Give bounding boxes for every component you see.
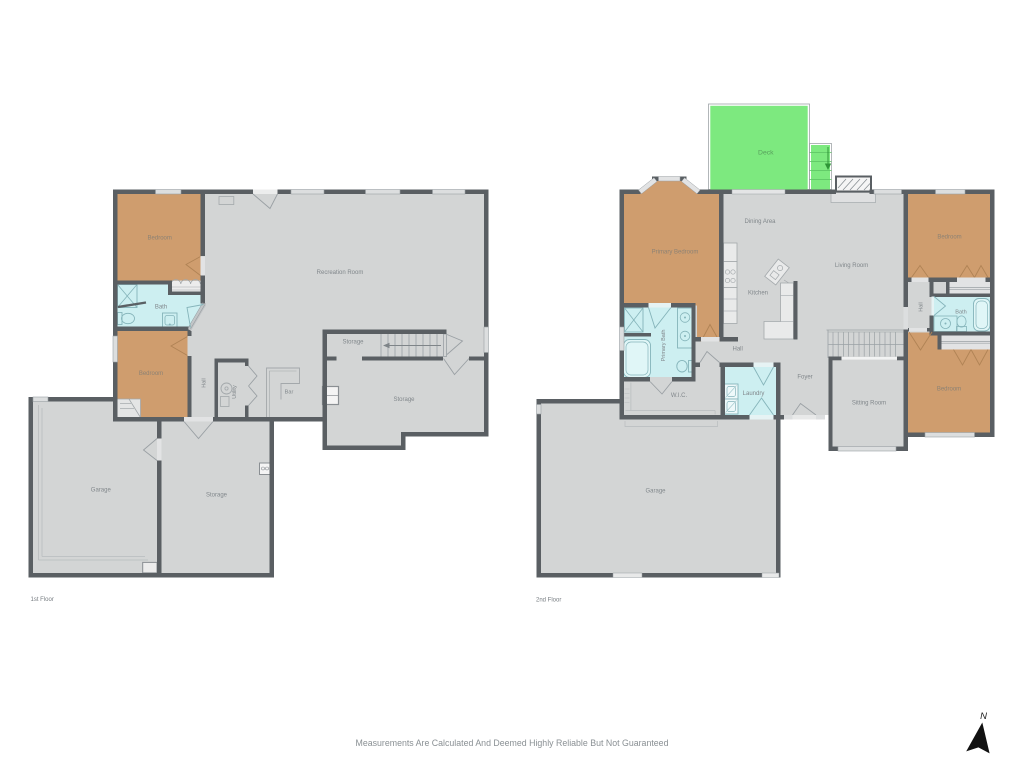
svg-text:Utility: Utility [232, 385, 238, 399]
svg-text:Storage: Storage [342, 340, 364, 346]
svg-text:Storage: Storage [393, 397, 415, 403]
svg-text:Dining Area: Dining Area [744, 219, 776, 225]
svg-text:W.I.C.: W.I.C. [671, 393, 688, 399]
svg-text:Bedroom: Bedroom [937, 387, 961, 393]
svg-text:Measurements Are Calculated An: Measurements Are Calculated And Deemed H… [356, 738, 669, 748]
svg-text:Living Room: Living Room [835, 263, 868, 269]
svg-text:Bedroom: Bedroom [139, 371, 163, 377]
svg-text:Bedroom: Bedroom [937, 235, 961, 241]
svg-text:Recreation Room: Recreation Room [317, 270, 364, 276]
svg-text:Bar: Bar [285, 390, 294, 396]
svg-text:1st Floor: 1st Floor [31, 597, 54, 603]
svg-text:Primary Bath: Primary Bath [661, 330, 667, 362]
svg-text:Hall: Hall [919, 302, 925, 311]
svg-text:N: N [980, 711, 987, 722]
svg-text:Deck: Deck [758, 150, 774, 157]
svg-text:Storage: Storage [206, 493, 228, 499]
svg-text:Primary Bedroom: Primary Bedroom [652, 250, 699, 256]
svg-text:Laundry: Laundry [743, 391, 765, 397]
svg-text:Kitchen: Kitchen [748, 291, 768, 297]
svg-text:Bath: Bath [155, 305, 167, 311]
svg-text:Garage: Garage [645, 489, 666, 495]
svg-text:Sitting Room: Sitting Room [852, 401, 886, 407]
svg-text:Hall: Hall [733, 347, 743, 353]
svg-text:Foyer: Foyer [797, 375, 812, 381]
svg-text:2nd Floor: 2nd Floor [536, 598, 561, 604]
svg-text:Bath: Bath [955, 310, 967, 316]
svg-text:Bedroom: Bedroom [148, 236, 172, 242]
svg-text:Garage: Garage [91, 488, 112, 494]
svg-text:Hall: Hall [202, 378, 208, 387]
